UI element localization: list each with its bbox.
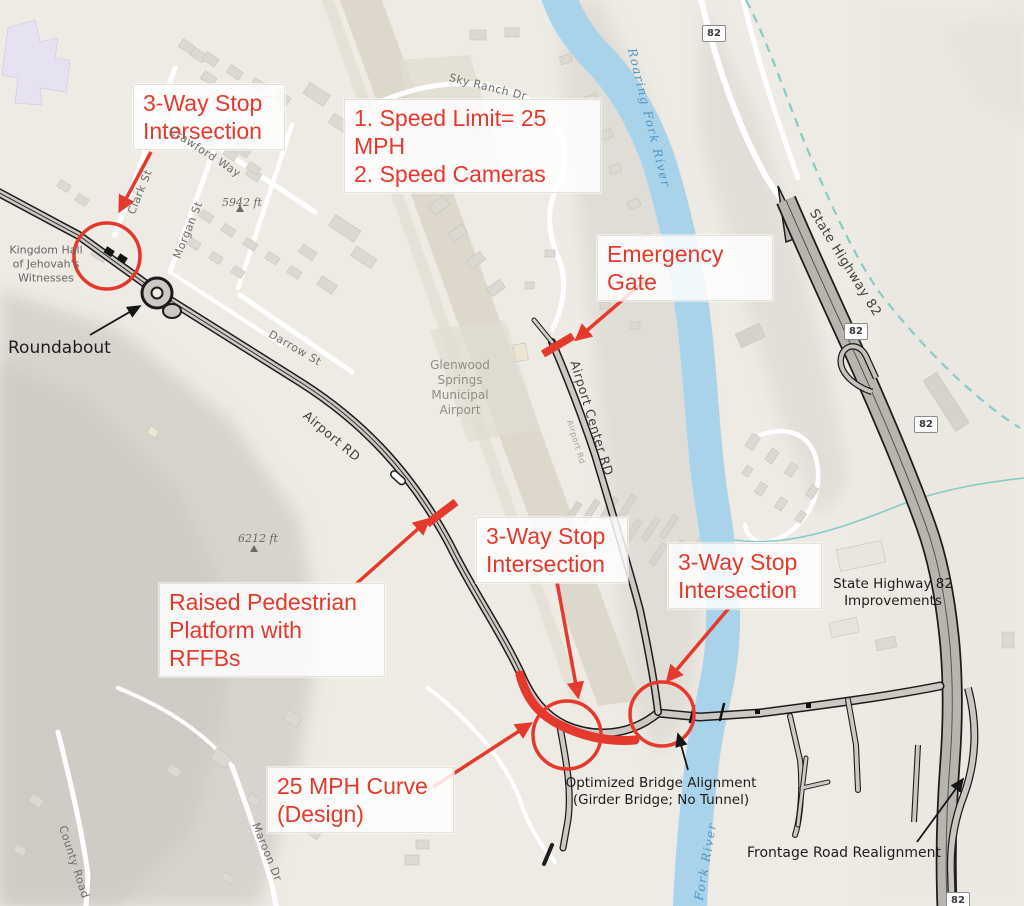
poi-glenwood-airport: Glenwood Springs Municipal Airport [430,358,490,418]
annotation-line: Intersection [486,550,618,578]
poi-line: Springs [430,373,490,388]
annotation-line: 1. Speed Limit= 25 MPH [354,104,591,160]
red-arrow-platform [356,520,428,584]
annotation-line: 3-Way Stop [678,548,812,576]
annotation-line: Intersection [143,117,275,145]
highway-shield-82: 82 [702,25,726,42]
annotation-line: Raised Pedestrian [169,588,375,616]
highway-shield-82: 82 [844,323,868,340]
callout-line: State Highway 82 [833,576,953,593]
annotation-emergency-gate: Emergency Gate [597,235,773,301]
poi-line: Kingdom Hall [9,243,82,257]
annotation-3way-stop-3: 3-Way Stop Intersection [668,543,822,609]
annotation-line: 3-Way Stop [486,522,618,550]
callout-line: Improvements [833,593,953,610]
annotation-3way-stop-2: 3-Way Stop Intersection [476,517,628,583]
poi-kingdom-hall: Kingdom Hall of Jehovah's Witnesses [9,243,82,284]
poi-line: Glenwood [430,358,490,373]
school-building [2,20,70,105]
annotation-line: 2. Speed Cameras [354,160,591,188]
elevation-5942: 5942 ft [222,196,262,209]
callout-frontage-road: Frontage Road Realignment [747,845,941,863]
annotation-line: Emergency Gate [607,240,763,296]
annotation-speed-notes: 1. Speed Limit= 25 MPH 2. Speed Cameras [344,99,601,193]
callout-line: (Girder Bridge; No Tunnel) [566,792,757,809]
annotation-line: Platform with RFFBs [169,616,375,672]
annotation-line: (Design) [277,800,444,828]
annotation-line: 3-Way Stop [143,89,275,117]
elevation-6212: 6212 ft [238,532,278,545]
annotation-line: 25 MPH Curve [277,772,444,800]
map-screenshot: 3-Way Stop Intersection 1. Speed Limit= … [0,0,1024,906]
poi-line: of Jehovah's [9,257,82,271]
poi-line: Witnesses [9,271,82,285]
callout-roundabout: Roundabout [8,338,111,359]
poi-line: Airport [430,403,490,418]
callout-sh82-improvements: State Highway 82 Improvements [833,576,953,610]
callout-optimized-bridge: Optimized Bridge Alignment (Girder Bridg… [566,775,757,809]
callout-line: Optimized Bridge Alignment [566,775,757,792]
annotation-raised-platform: Raised Pedestrian Platform with RFFBs [159,583,385,677]
poi-line: Municipal [430,388,490,403]
annotation-25mph-curve: 25 MPH Curve (Design) [267,767,454,833]
highway-shield-82: 82 [946,892,970,906]
highway-shield-82: 82 [914,416,938,433]
annotation-line: Intersection [678,576,812,604]
annotation-3way-stop-1: 3-Way Stop Intersection [133,84,285,150]
